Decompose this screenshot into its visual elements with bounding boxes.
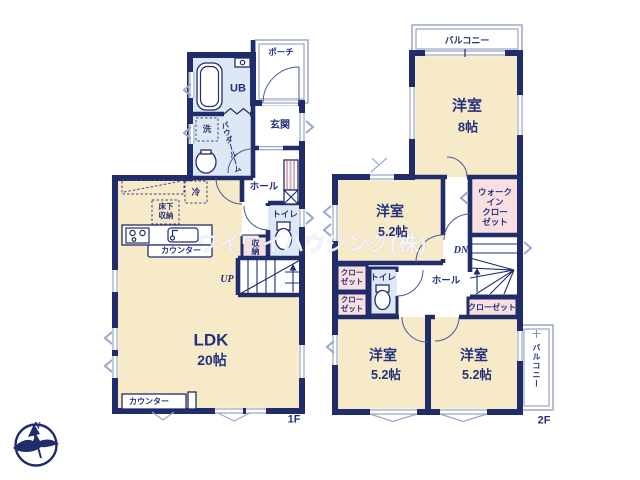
label-wic-line3: クロー: [478, 207, 512, 217]
label-porch: ポーチ: [268, 48, 294, 57]
label-toilet-2f: トイレ: [370, 273, 396, 282]
label-ldk: LDK: [194, 332, 229, 349]
label-stairs-down: DN: [454, 246, 468, 256]
label-underfloor-storage-line2: 収納: [159, 212, 174, 221]
label-wic-line2: イン: [478, 197, 512, 207]
label-room52-north: 洋室: [376, 204, 404, 218]
label-wic-line4: ゼット: [478, 217, 512, 227]
label-floor1: 1F: [288, 415, 301, 426]
label-room52-se: 洋室: [460, 348, 488, 362]
label-toilet-1f: トイレ: [272, 210, 298, 219]
label-room8-size: 8帖: [458, 121, 478, 134]
vent-chevron: [306, 121, 313, 133]
floorplan-canvas: ワイワイハウジング(株) ポーチ UB 玄関 洗 パウダールーム 冷 床下 収納…: [0, 0, 640, 480]
label-closet-west-lower: クロー ゼット: [341, 296, 364, 314]
label-closet-east: クローゼット: [468, 304, 516, 312]
vent-chevron: [306, 212, 313, 224]
label-stairs-up: UP: [220, 275, 233, 285]
label-hall-2f: ホール: [432, 276, 461, 286]
label-washer: 洗: [203, 125, 212, 134]
bath-vanity: [235, 58, 250, 67]
label-closet-wu-line2: ゼット: [341, 278, 364, 287]
label-kitchen-counter: カウンター: [161, 247, 201, 255]
label-floor2: 2F: [538, 416, 551, 427]
floor2-plan: [324, 25, 553, 422]
label-underfloor-storage: 床下 収納: [159, 203, 174, 221]
label-room8: 洋室: [452, 99, 482, 114]
vent-chevron: [324, 206, 331, 218]
label-south-counter: カウンター: [129, 398, 169, 406]
label-compass-north: N: [33, 422, 40, 432]
label-room52-sw-size: 5.2帖: [371, 369, 401, 382]
label-walk-in-closet: ウォーク イン クロー ゼット: [478, 187, 512, 227]
label-fridge: 冷: [192, 188, 201, 197]
label-hall-1f: ホール: [250, 182, 279, 192]
compass-bird: [13, 434, 59, 452]
vent-chevron: [105, 332, 112, 344]
vent-chevron: [524, 242, 531, 254]
label-storage-1f: 収納: [251, 239, 259, 255]
label-balcony-east: バルコニー: [532, 344, 540, 389]
label-entrance: 玄関: [270, 121, 290, 131]
label-wic-line1: ウォーク: [478, 187, 512, 197]
room8-floor: [412, 53, 520, 177]
label-closet-wl-line2: ゼット: [341, 305, 364, 314]
label-ldk-size: 20帖: [197, 353, 227, 367]
room52-se-floor: [428, 317, 520, 412]
label-unit-bath: UB: [230, 84, 246, 95]
room52-sw-floor: [337, 317, 428, 412]
label-room52-sw: 洋室: [369, 348, 397, 362]
label-closet-west-upper: クロー ゼット: [341, 269, 364, 287]
label-room52-se-size: 5.2帖: [462, 369, 492, 382]
vent-chevron: [105, 360, 112, 372]
label-balcony-north: バルコニー: [445, 37, 490, 46]
label-room52-north-size: 5.2帖: [378, 226, 408, 239]
